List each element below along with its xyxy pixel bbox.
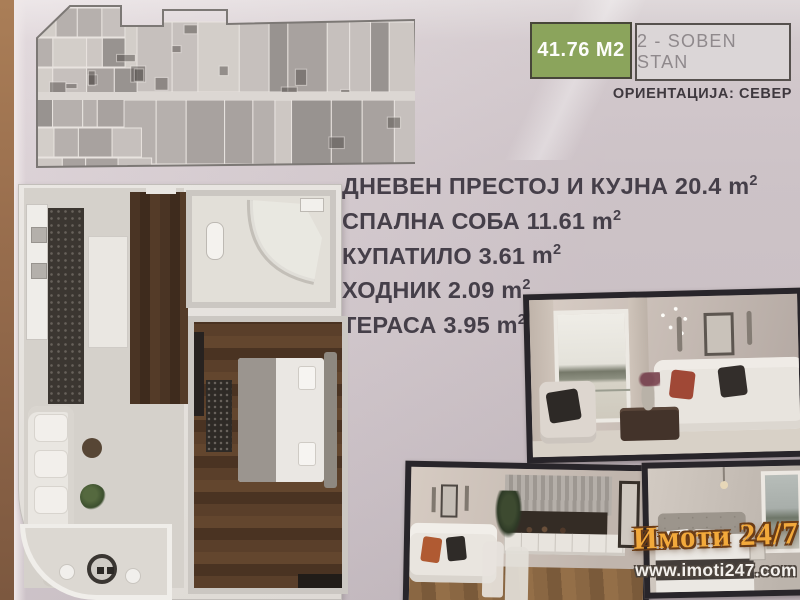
terrace-stool (125, 568, 141, 584)
bedroom (188, 316, 348, 594)
counter-items (520, 525, 581, 535)
side-table (82, 438, 102, 458)
orange-pillow (420, 536, 442, 564)
dining-chair (481, 541, 503, 597)
area-badge-label: 41.76 M2 (537, 39, 624, 62)
sofa (28, 406, 74, 542)
terrace (20, 524, 172, 600)
room-list-item: ДНЕВЕН ПРЕСТОЈ И КУЈНА 20.4 m2 (342, 166, 758, 201)
sink-icon (31, 263, 47, 279)
coffee-table (620, 407, 680, 441)
hallway-floor (130, 192, 188, 404)
shower-enclosure (244, 198, 328, 302)
dark-pillow (717, 364, 747, 397)
agency-website: www.imoti247.com (628, 560, 800, 581)
kitchen-living-photo (403, 461, 652, 600)
chandelier (655, 303, 694, 345)
bed-headboard (324, 352, 337, 488)
room-list-item: СПАЛНА СОБА 11.61 m2 (342, 201, 758, 236)
bathroom-sink (300, 198, 324, 212)
orientation-label: ОРИЕНТАЦИЈА: СЕВЕР (540, 86, 792, 102)
room-list-item: КУПАТИЛО 3.61 m2 (342, 236, 758, 271)
kitchen-floor (48, 208, 84, 404)
pillow (298, 442, 316, 466)
apartment-type-label: 2 - SOBEN STAN (637, 31, 789, 73)
page-edge-strip (0, 0, 14, 600)
wall-sconce (464, 486, 468, 511)
wall-art (704, 313, 734, 356)
entry-door (146, 188, 176, 194)
vase (641, 384, 655, 411)
brochure-page: 41.76 M2 2 - SOBEN STAN ОРИЕНТАЦИЈА: СЕВ… (0, 0, 800, 600)
living-room-photo (523, 288, 800, 464)
terrace-stool (59, 564, 75, 580)
apartment-3d-plan (18, 178, 398, 600)
area-badge: 41.76 M2 (530, 22, 632, 79)
rug (206, 380, 232, 452)
apartment-type-badge: 2 - SOBEN STAN (635, 23, 791, 81)
dark-pillow (446, 535, 467, 561)
toilet (206, 222, 224, 260)
tv-unit (194, 332, 204, 416)
red-pillow (669, 369, 696, 400)
wall-sconce (432, 487, 436, 512)
pendant-light (723, 467, 725, 482)
wall-art (441, 484, 458, 518)
bathroom (186, 190, 336, 308)
dark-pillow (545, 388, 582, 424)
terrace-table (87, 554, 117, 584)
bed-blanket (238, 358, 276, 482)
kitchen-counter (26, 204, 48, 340)
pendant-light-bulb (720, 481, 728, 489)
plant (80, 484, 106, 510)
agency-logo: Имоти 24/7 (623, 515, 800, 557)
flowers (638, 372, 660, 387)
balcony-door (298, 574, 342, 588)
building-floor-plan (15, 2, 415, 169)
pillow (298, 366, 316, 390)
dining-chair (505, 547, 529, 600)
wall-sconce (747, 311, 753, 346)
plant (494, 491, 523, 539)
stove-icon (31, 227, 47, 243)
dining-table (88, 236, 128, 348)
